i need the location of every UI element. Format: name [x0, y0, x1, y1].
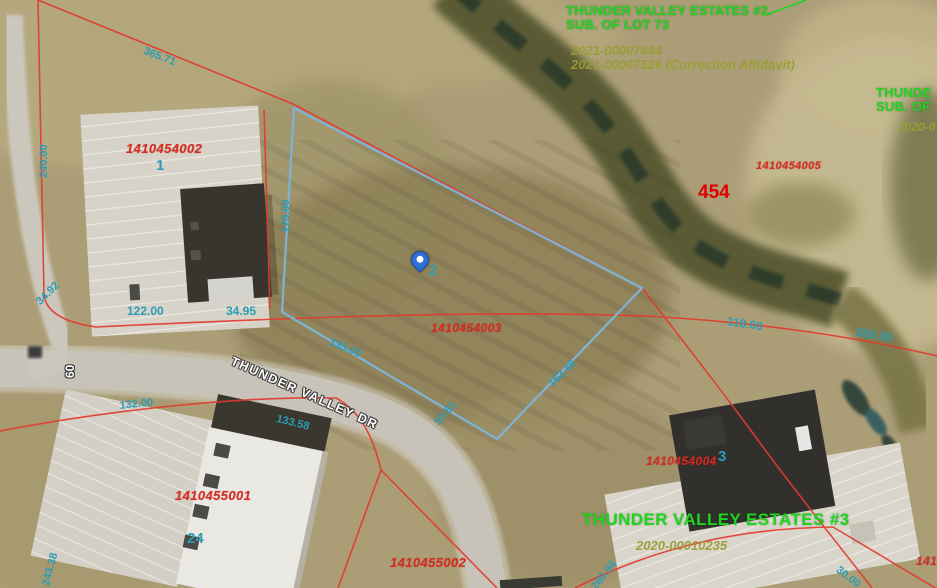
parcel-boundary-lines	[0, 0, 937, 588]
parcel-lines-layer	[0, 0, 937, 588]
selected-parcel-outline[interactable]	[282, 108, 642, 439]
subdivision-leader-line	[766, 0, 806, 15]
aerial-map-canvas[interactable]: THUNDER VALLEY ESTATES #2. SUB. OF LOT 7…	[0, 0, 937, 588]
